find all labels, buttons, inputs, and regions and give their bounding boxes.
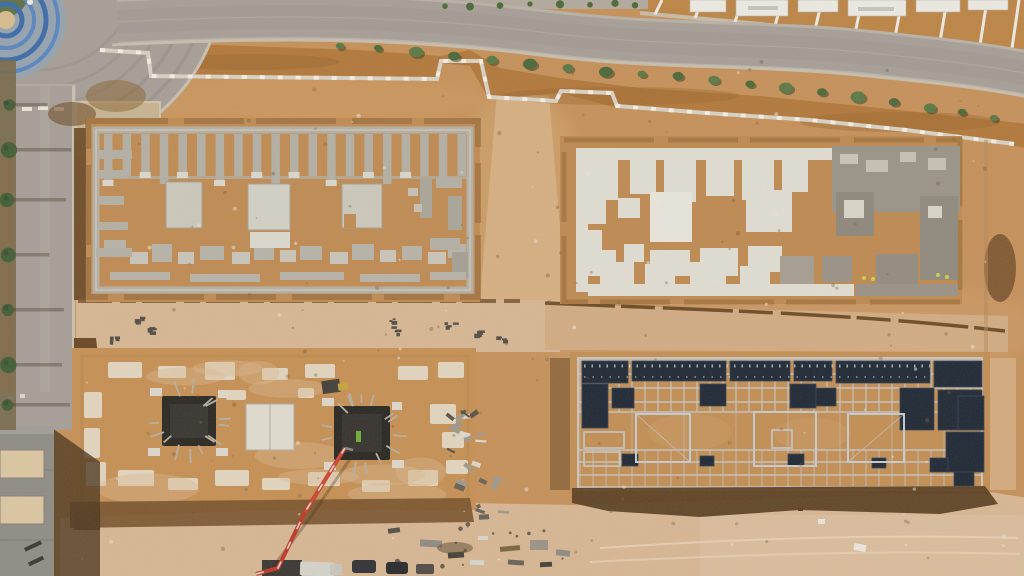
construction-site-scene xyxy=(0,0,1024,576)
aerial-photo xyxy=(0,0,1024,576)
photo-grain xyxy=(0,0,1024,576)
